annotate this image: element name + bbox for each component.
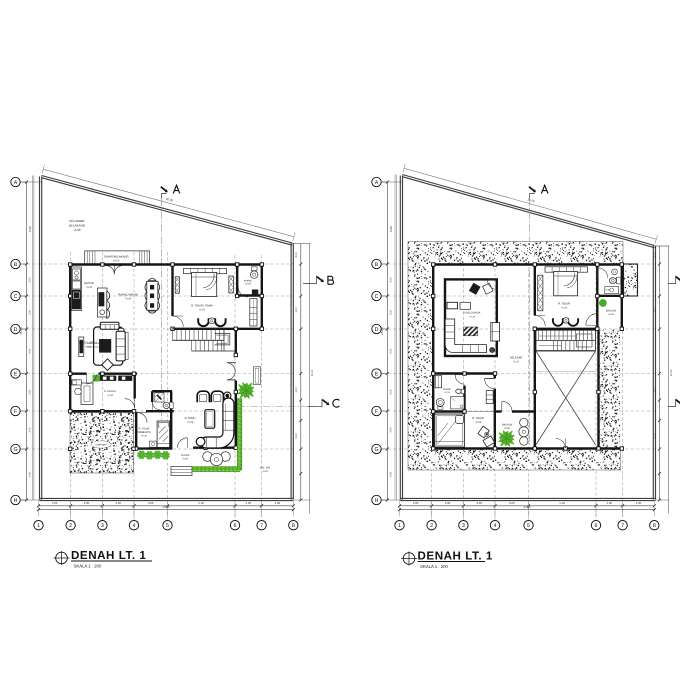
svg-text:DENAH LT. 1: DENAH LT. 1	[71, 549, 146, 562]
svg-text:TERAS BELAKANG: TERAS BELAKANG	[103, 254, 128, 258]
svg-text:B: B	[14, 262, 18, 268]
svg-text:8.00: 8.00	[389, 226, 393, 232]
svg-text:3: 3	[101, 523, 104, 529]
svg-text:R. TIDUR: R. TIDUR	[472, 417, 484, 420]
svg-text:E: E	[375, 371, 379, 377]
svg-text:6: 6	[595, 523, 598, 529]
svg-text:3.00: 3.00	[84, 501, 90, 505]
svg-text:+0.15: +0.15	[444, 391, 450, 394]
svg-text:3.00: 3.00	[29, 389, 32, 395]
svg-text:3.00: 3.00	[295, 433, 298, 439]
svg-text:3.00: 3.00	[390, 277, 393, 283]
svg-text:+0.05: +0.05	[605, 289, 611, 292]
svg-text:D: D	[375, 327, 379, 333]
svg-text:BELAKANG: BELAKANG	[69, 224, 86, 228]
svg-text:+0.00: +0.00	[86, 286, 93, 289]
svg-text:3.00: 3.00	[295, 307, 298, 313]
svg-text:3.00: 3.00	[390, 389, 393, 395]
svg-text:4: 4	[133, 523, 136, 529]
svg-text:R. KELUARGA: R. KELUARGA	[79, 342, 97, 345]
svg-text:7: 7	[621, 523, 624, 529]
svg-text:+0.20: +0.20	[199, 309, 206, 312]
svg-text:+0.20: +0.20	[469, 316, 476, 319]
svg-text:5: 5	[527, 523, 530, 529]
svg-text:G: G	[374, 447, 378, 453]
svg-text:+0.05: +0.05	[475, 421, 482, 424]
svg-text:BALKON: BALKON	[502, 424, 512, 427]
svg-text:7: 7	[260, 523, 263, 529]
svg-text:+0.20: +0.20	[513, 361, 520, 364]
svg-text:20.00: 20.00	[162, 505, 169, 509]
svg-text:R.KELUARGA: R.KELUARGA	[464, 312, 481, 315]
svg-text:G: G	[13, 447, 17, 453]
svg-text:3.00: 3.00	[390, 309, 393, 315]
svg-text:PEMBANTU: PEMBANTU	[137, 431, 151, 434]
svg-text:H: H	[14, 498, 18, 504]
svg-text:4.00: 4.00	[29, 348, 32, 354]
svg-text:5.40: 5.40	[199, 501, 205, 505]
svg-text:5: 5	[166, 523, 169, 529]
svg-text:3: 3	[462, 523, 465, 529]
svg-text:+0.05: +0.05	[504, 427, 511, 430]
svg-text:B: B	[375, 262, 379, 268]
svg-text:SKALA 1 : 200: SKALA 1 : 200	[420, 564, 449, 569]
svg-text:3.00: 3.00	[654, 387, 657, 393]
svg-text:+0.40: +0.40	[141, 435, 148, 438]
svg-text:C: C	[14, 294, 18, 300]
svg-text:+0.05: +0.05	[245, 283, 252, 286]
svg-text:DENAH LT. 1: DENAH LT. 1	[418, 549, 493, 562]
svg-text:+0.05: +0.05	[182, 458, 189, 461]
svg-text:E: E	[14, 371, 18, 377]
svg-text:A: A	[375, 180, 379, 186]
svg-text:8.00: 8.00	[654, 252, 657, 258]
svg-text:D: D	[14, 327, 18, 333]
svg-text:1: 1	[398, 523, 401, 529]
svg-text:1: 1	[37, 523, 40, 529]
svg-text:CARPORT: CARPORT	[95, 444, 107, 447]
svg-text:2.00: 2.00	[607, 501, 613, 505]
svg-text:4.00: 4.00	[390, 348, 393, 354]
svg-text:3.00: 3.00	[654, 433, 657, 439]
svg-text:-0.30: -0.30	[262, 470, 268, 473]
svg-text:4.00: 4.00	[29, 471, 32, 477]
svg-text:R. TIDUR UTAMA: R. TIDUR UTAMA	[191, 305, 213, 308]
svg-text:3.00: 3.00	[390, 427, 393, 433]
svg-text:C: C	[375, 294, 379, 300]
svg-text:8: 8	[653, 523, 656, 529]
svg-text:+0.00: +0.00	[85, 346, 92, 349]
svg-text:A: A	[14, 180, 18, 186]
svg-text:KELAMBIR: KELAMBIR	[69, 219, 85, 223]
svg-text:2.30: 2.30	[636, 501, 642, 505]
svg-text:+0.40: +0.40	[107, 394, 114, 397]
svg-text:3.00: 3.00	[295, 387, 298, 393]
svg-text:3.00: 3.00	[476, 501, 482, 505]
svg-text:3.00: 3.00	[29, 427, 32, 433]
svg-text:+0.00: +0.00	[125, 298, 132, 301]
svg-text:2.00: 2.00	[246, 501, 252, 505]
svg-text:25.00: 25.00	[670, 369, 673, 376]
svg-text:R. KERJA: R. KERJA	[104, 390, 116, 393]
svg-text:3.00: 3.00	[445, 501, 451, 505]
svg-text:+0.05: +0.05	[187, 421, 194, 424]
svg-text:BALKON: BALKON	[606, 310, 616, 313]
svg-text:+0.20: +0.20	[561, 307, 568, 310]
svg-text:2.00: 2.00	[413, 501, 419, 505]
svg-text:SKALA 1 : 200: SKALA 1 : 200	[74, 564, 103, 569]
svg-text:3.00: 3.00	[509, 501, 515, 505]
svg-text:25.00: 25.00	[311, 369, 314, 376]
svg-text:KM/WC: KM/WC	[443, 388, 452, 391]
svg-text:3.00: 3.00	[29, 309, 32, 315]
svg-text:R. TAMU: R. TAMU	[185, 417, 196, 420]
svg-text:2: 2	[430, 523, 433, 529]
svg-text:-0.30: -0.30	[74, 228, 81, 232]
svg-text:+0.00: +0.00	[113, 259, 120, 262]
svg-text:4.00: 4.00	[390, 471, 393, 477]
svg-text:RUANG MAKAN: RUANG MAKAN	[118, 294, 138, 297]
svg-text:3.00: 3.00	[654, 307, 657, 313]
svg-text:R. TIDUR: R. TIDUR	[558, 303, 570, 306]
svg-text:2: 2	[69, 523, 72, 529]
svg-text:DAPUR: DAPUR	[84, 282, 93, 285]
svg-text:KM/WC: KM/WC	[244, 280, 253, 283]
svg-text:+0.15: +0.15	[608, 313, 615, 316]
svg-text:3.00: 3.00	[148, 501, 154, 505]
svg-text:8: 8	[292, 523, 295, 529]
svg-text:3.00: 3.00	[115, 501, 121, 505]
svg-text:SAL. AIR: SAL. AIR	[260, 467, 270, 470]
svg-text:3.00: 3.00	[29, 277, 32, 283]
svg-text:2.30: 2.30	[275, 501, 281, 505]
svg-text:4: 4	[494, 523, 497, 529]
svg-text:6: 6	[234, 523, 237, 529]
svg-text:SELASAR: SELASAR	[510, 357, 522, 360]
svg-text:5.40: 5.40	[560, 501, 566, 505]
svg-text:2.00: 2.00	[52, 501, 58, 505]
svg-text:8.00: 8.00	[28, 226, 32, 232]
svg-text:H: H	[375, 498, 379, 504]
svg-text:21.00: 21.00	[523, 505, 530, 509]
svg-text:8.00: 8.00	[295, 252, 298, 258]
